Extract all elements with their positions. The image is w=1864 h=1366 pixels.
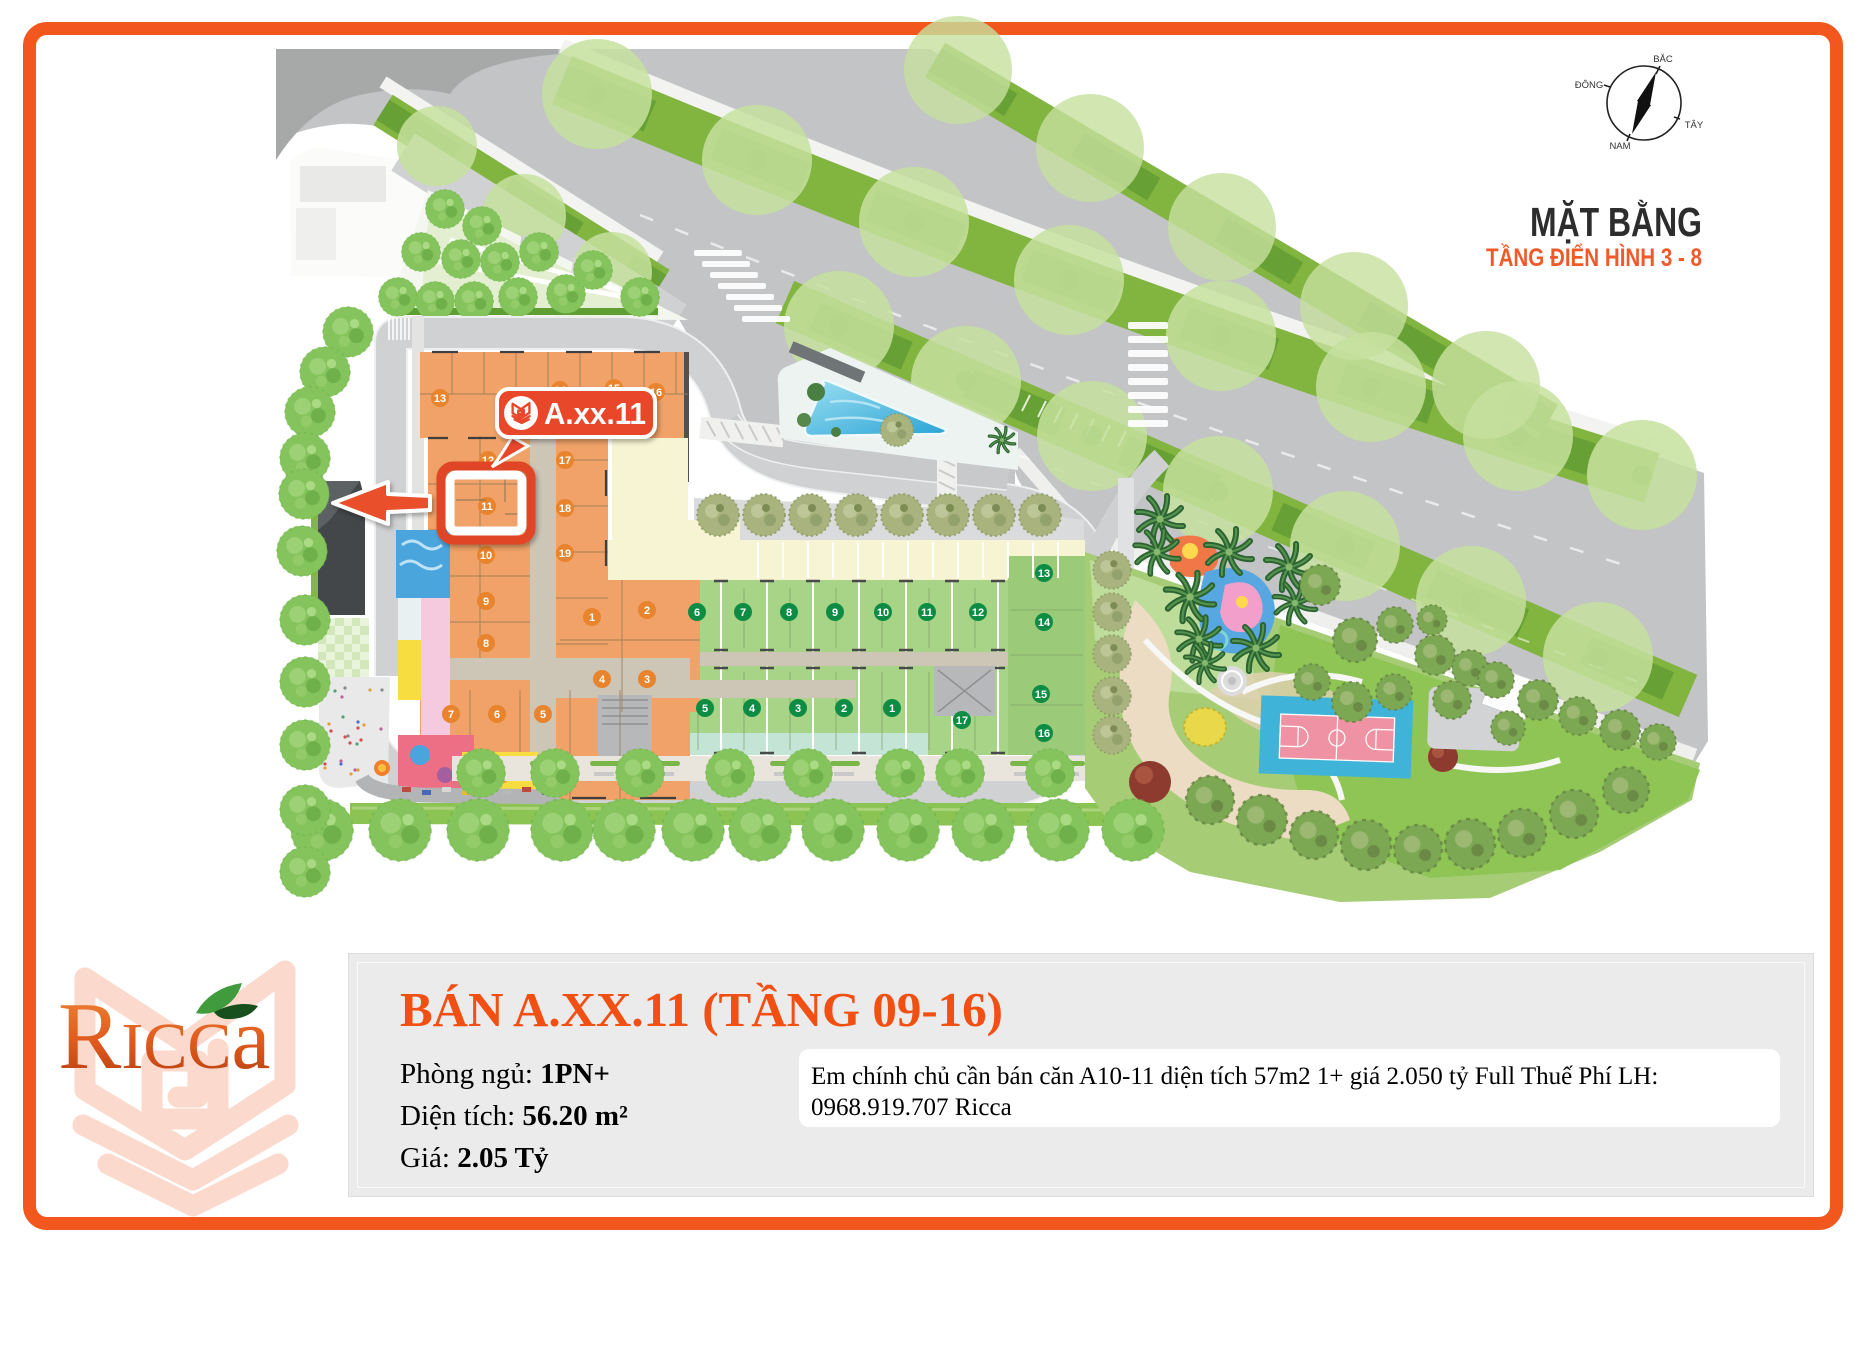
- svg-text:NAM: NAM: [1609, 141, 1630, 152]
- svg-text:RICCa: RICCa: [58, 983, 270, 1089]
- svg-text:12: 12: [972, 607, 984, 619]
- svg-text:7: 7: [740, 607, 746, 619]
- svg-text:1: 1: [589, 612, 595, 624]
- svg-text:13: 13: [434, 393, 446, 405]
- svg-text:1: 1: [889, 703, 895, 715]
- svg-text:17: 17: [559, 455, 571, 467]
- svg-text:15: 15: [1035, 689, 1047, 701]
- svg-text:5: 5: [540, 709, 546, 721]
- svg-text:A.xx.11: A.xx.11: [544, 396, 646, 431]
- svg-text:6: 6: [494, 709, 500, 721]
- svg-text:17: 17: [956, 715, 968, 727]
- svg-text:MẶT BẰNG: MẶT BẰNG: [1530, 199, 1702, 245]
- svg-text:3: 3: [644, 674, 650, 686]
- svg-text:16: 16: [1038, 728, 1050, 740]
- svg-text:10: 10: [480, 550, 492, 562]
- svg-text:2: 2: [644, 605, 650, 617]
- svg-text:BẮC: BẮC: [1653, 54, 1673, 65]
- svg-text:3: 3: [795, 703, 801, 715]
- svg-text:14: 14: [1038, 617, 1051, 629]
- svg-text:9: 9: [832, 607, 838, 619]
- svg-text:13: 13: [1038, 568, 1050, 580]
- svg-text:10: 10: [877, 607, 889, 619]
- svg-text:TẦNG ĐIỂN HÌNH 3 - 8: TẦNG ĐIỂN HÌNH 3 - 8: [1486, 243, 1702, 272]
- svg-text:2: 2: [841, 703, 847, 715]
- svg-text:ĐÔNG: ĐÔNG: [1575, 80, 1604, 91]
- svg-text:8: 8: [483, 638, 489, 650]
- svg-text:11: 11: [481, 501, 493, 513]
- svg-text:4: 4: [599, 674, 606, 686]
- svg-text:18: 18: [559, 503, 571, 515]
- svg-text:9: 9: [483, 596, 489, 608]
- svg-text:6: 6: [694, 607, 700, 619]
- svg-text:7: 7: [448, 709, 454, 721]
- svg-text:4: 4: [749, 703, 756, 715]
- svg-text:11: 11: [921, 607, 933, 619]
- svg-text:8: 8: [786, 607, 792, 619]
- svg-text:19: 19: [559, 548, 571, 560]
- svg-text:5: 5: [702, 703, 708, 715]
- svg-text:TÂY: TÂY: [1685, 120, 1704, 131]
